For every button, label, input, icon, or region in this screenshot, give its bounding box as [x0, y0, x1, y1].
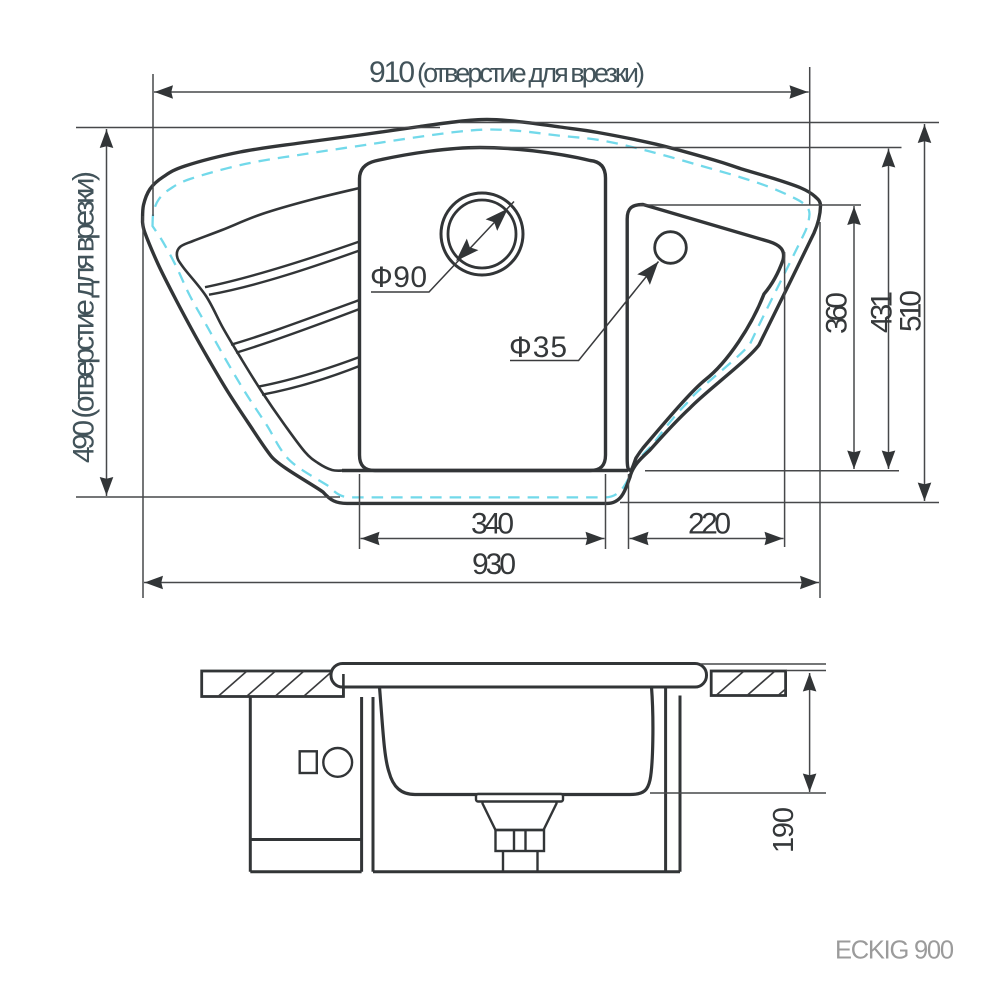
svg-text:490 (отверстие для врезки): 490 (отверстие для врезки)	[68, 171, 101, 463]
svg-text:Ф90: Ф90	[370, 261, 427, 294]
svg-text:190: 190	[768, 807, 800, 853]
svg-text:Ф35: Ф35	[509, 331, 567, 364]
svg-text:ECKIG 900: ECKIG 900	[835, 937, 954, 965]
svg-text:(отверстие для врезки): (отверстие для врезки)	[417, 58, 645, 88]
svg-text:360: 360	[821, 292, 854, 334]
svg-text:910: 910	[369, 56, 415, 89]
svg-text:930: 930	[472, 548, 516, 581]
svg-text:220: 220	[688, 508, 731, 541]
svg-text:340: 340	[471, 508, 514, 541]
svg-text:510: 510	[895, 290, 928, 332]
